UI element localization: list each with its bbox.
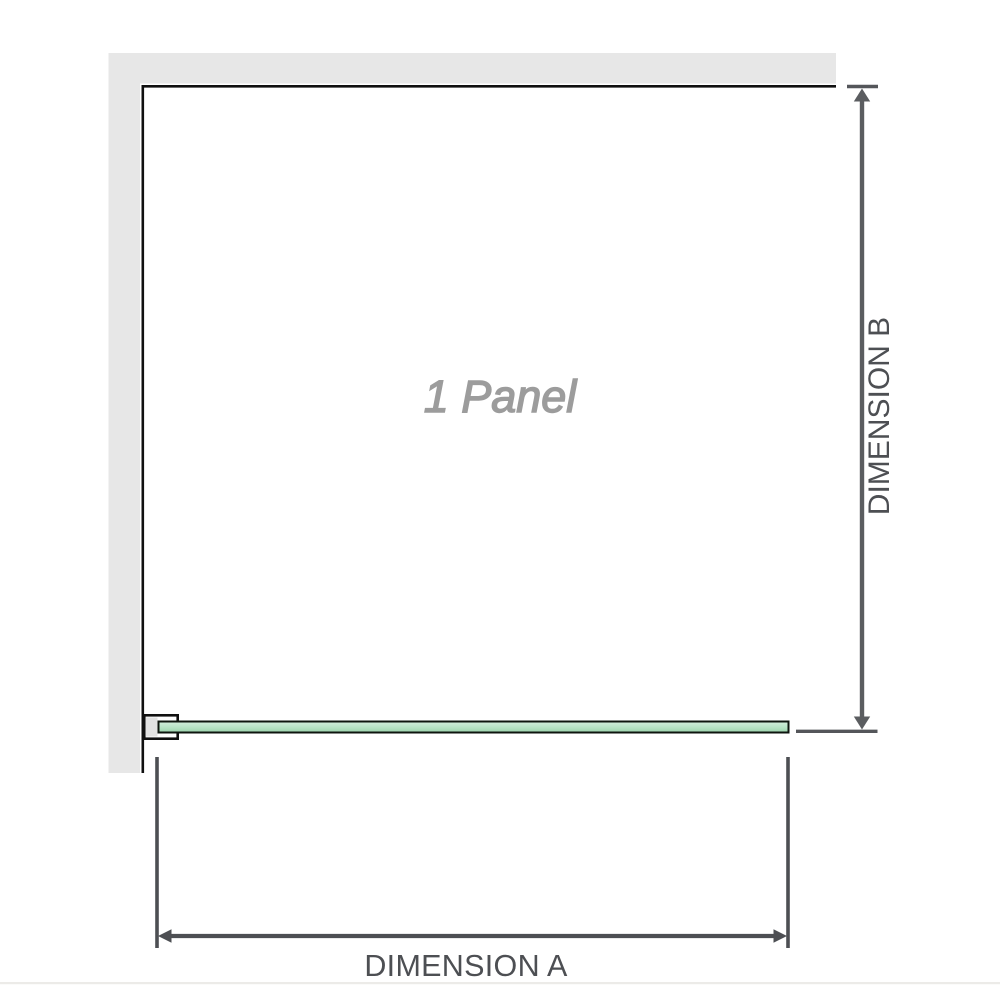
svg-text:DIMENSION A: DIMENSION A bbox=[364, 949, 568, 983]
svg-text:DIMENSION B: DIMENSION B bbox=[863, 317, 896, 515]
svg-text:1 Panel: 1 Panel bbox=[424, 371, 579, 422]
